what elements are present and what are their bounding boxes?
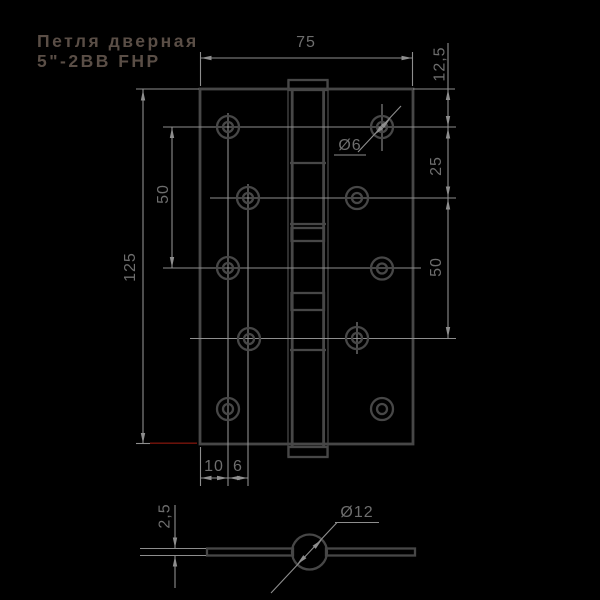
screw-hole bbox=[371, 398, 393, 420]
title-line-1: Петля дверная bbox=[37, 31, 199, 51]
dim-label-12-5: 12,5 bbox=[432, 46, 449, 81]
drawing-canvas: Петля дверная 5"-2BB FHP bbox=[0, 0, 600, 600]
dimension-width-75: 75 bbox=[201, 34, 413, 86]
dim-label-75: 75 bbox=[296, 34, 316, 51]
main-view: 75 125 50 12,5 bbox=[122, 34, 456, 486]
dim-label-25: 25 bbox=[428, 156, 445, 176]
dim-label-10: 10 bbox=[204, 458, 224, 475]
section-view: 2,5 Ø12 bbox=[140, 503, 415, 593]
dim-label-6: 6 bbox=[233, 458, 243, 475]
technical-drawing: Петля дверная 5"-2BB FHP bbox=[0, 0, 600, 600]
callout-label-d12: Ø12 bbox=[340, 504, 373, 521]
dim-label-50-left: 50 bbox=[155, 184, 172, 204]
dim-label-2-5: 2,5 bbox=[157, 503, 174, 528]
callout-screw-hole-diameter: Ø6 bbox=[334, 106, 401, 155]
leaf-section-left bbox=[207, 549, 293, 556]
bearing-ring-1 bbox=[292, 228, 325, 241]
bearing-ring-2 bbox=[292, 293, 325, 310]
dimension-bottom-10-6: 10 6 bbox=[201, 458, 249, 480]
title-line-2: 5"-2BB FHP bbox=[37, 51, 161, 71]
callout-label-d6: Ø6 bbox=[338, 137, 361, 154]
dimension-right-chain: 12,5 25 50 bbox=[413, 43, 455, 338]
leaf-section-right bbox=[326, 549, 415, 556]
dimension-thickness-2-5: 2,5 bbox=[140, 503, 206, 588]
dimension-height-125: 125 bbox=[122, 89, 199, 444]
drawing-title: Петля дверная 5"-2BB FHP bbox=[37, 31, 199, 71]
dimension-left-50: 50 bbox=[155, 127, 174, 268]
barrel-bottom-cap bbox=[289, 447, 328, 457]
dim-label-50-right: 50 bbox=[428, 257, 445, 277]
dim-label-125: 125 bbox=[122, 252, 139, 282]
